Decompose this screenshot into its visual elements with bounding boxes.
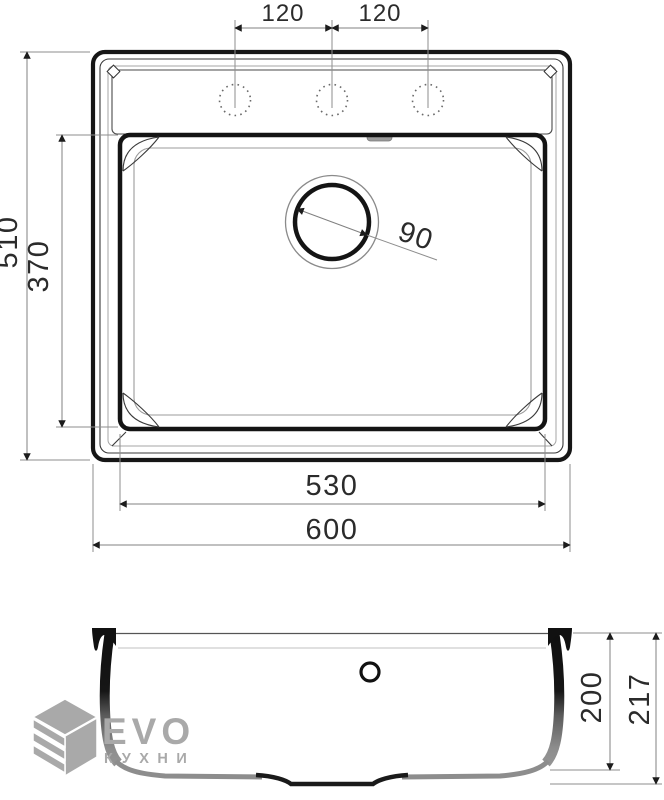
right-wall [546,631,559,763]
overflow-hole [361,663,379,681]
label-outer-width: 600 [306,514,359,546]
logo-subtitle-text: КУХНИ [104,751,195,767]
label-faucet-spacing-left: 120 [261,0,304,27]
logo-brand-text: EVO [102,711,195,752]
label-faucet-spacing-right: 120 [358,0,401,27]
label-bowl-depth: 200 [576,671,608,724]
drain-recess [256,775,408,784]
sink-outer-edge [93,52,570,460]
label-bowl-width: 530 [306,470,359,502]
label-overall-depth: 217 [624,673,656,726]
label-bowl-height: 370 [23,240,55,293]
floor-right [402,761,548,777]
sink-technical-drawing: 120 120 510 370 90 530 600 200 217 EVO К… [0,0,664,800]
brand-logo: EVO КУХНИ [33,699,195,776]
label-outer-height: 510 [0,216,24,269]
drawing-canvas: 120 120 510 370 90 530 600 200 217 EVO К… [0,0,664,800]
top-view [93,52,570,460]
cube-icon [33,699,97,776]
